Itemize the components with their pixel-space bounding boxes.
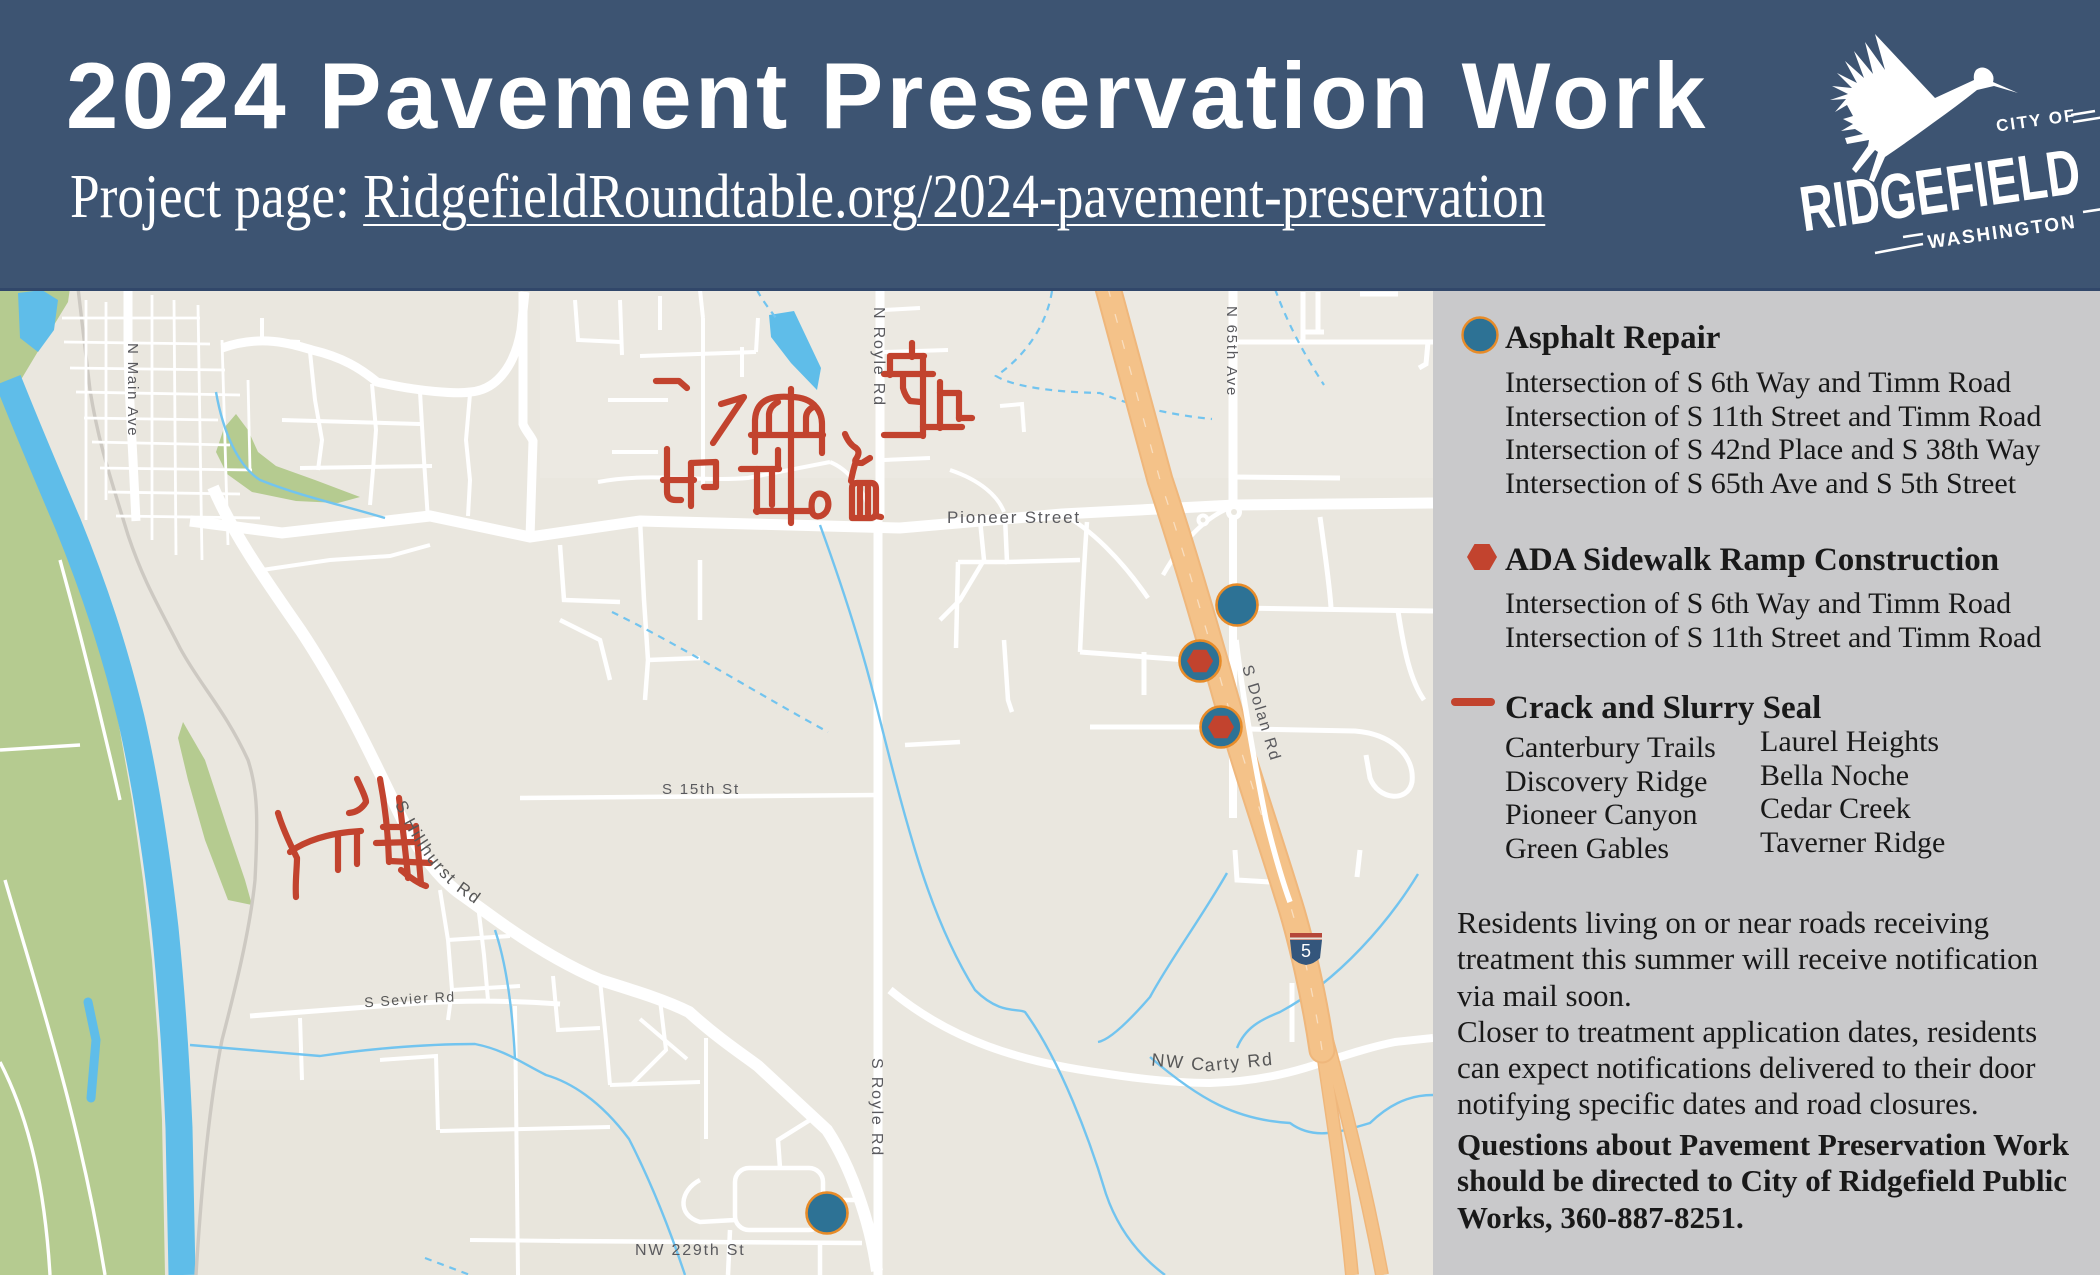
- svg-text:S 15th St: S 15th St: [662, 781, 740, 798]
- svg-text:NW 229th St: NW 229th St: [635, 1242, 746, 1259]
- svg-text:N 65th Ave: N 65th Ave: [1223, 306, 1240, 397]
- svg-text:CITY OF: CITY OF: [1995, 106, 2078, 136]
- svg-text:5: 5: [1301, 941, 1311, 961]
- svg-text:N Royle Rd: N Royle Rd: [870, 307, 887, 407]
- svg-text:N Main Ave: N Main Ave: [124, 343, 141, 437]
- svg-text:S Royle Rd: S Royle Rd: [868, 1058, 885, 1157]
- svg-text:Pioneer Street: Pioneer Street: [947, 508, 1081, 527]
